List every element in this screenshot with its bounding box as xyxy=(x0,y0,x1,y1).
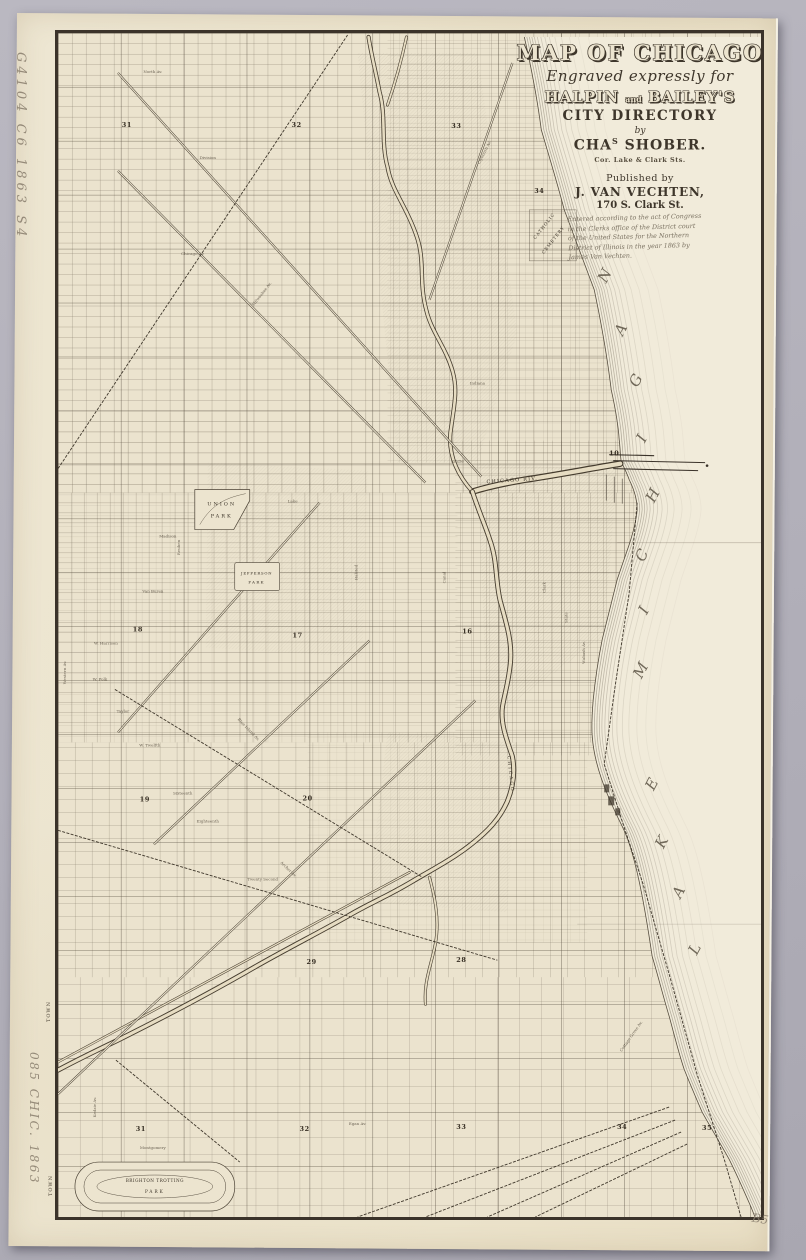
section-number: 32 xyxy=(300,1125,310,1133)
street-label: Sixteenth xyxy=(173,790,193,795)
street-label: State xyxy=(563,612,568,623)
map-subtitle: Engraved expressly for xyxy=(512,67,768,85)
section-number: 31 xyxy=(136,1125,146,1133)
street-label: Kinzie xyxy=(451,459,464,464)
corner-annotation: B5 xyxy=(751,1211,770,1228)
street-label: Eighteenth xyxy=(197,818,220,823)
street-label: Wabash Av. xyxy=(581,641,586,664)
town-boundary-label: TOWN xyxy=(48,1175,54,1196)
street-label: Indiana xyxy=(470,381,486,386)
place-label: UNION xyxy=(207,502,236,508)
street-label: W. Polk xyxy=(93,676,108,681)
section-number: 10 xyxy=(609,450,619,458)
street-label: Twenty Second xyxy=(247,876,278,881)
place-label: PARK xyxy=(211,514,233,520)
section-number: 28 xyxy=(456,956,466,964)
directory-title: CITY DIRECTORY xyxy=(512,108,768,124)
section-number: 31 xyxy=(122,121,132,129)
section-number: 33 xyxy=(451,122,461,130)
engraver-address: Cor. Lake & Clark Sts. xyxy=(512,156,768,164)
halpin-text: HALPIN xyxy=(545,88,619,106)
photo-backdrop: { "page": { "backdrop_color": "#b3b1ba",… xyxy=(0,0,806,1260)
street-label: Taylor xyxy=(117,708,130,713)
place-label: PARK xyxy=(145,1189,165,1194)
call-number-annotation: G4104 C6 1863 S4 xyxy=(13,52,28,240)
engraver-name: CHAS SHOBER. xyxy=(512,136,768,154)
town-boundary-label: TOWN xyxy=(46,1001,52,1022)
baileys-text: BAILEY'S xyxy=(648,88,735,106)
copyright-statement: Entered according to the act of Congress… xyxy=(567,211,743,264)
street-label: W. Twelfth xyxy=(139,742,161,747)
street-label: Canal xyxy=(441,571,446,583)
street-label: Kedzie Av. xyxy=(92,1097,97,1118)
directory-owners: HALPIN and BAILEY'S xyxy=(512,88,768,106)
place-label: JEFFERSON xyxy=(240,571,272,576)
street-label: W. Harrison xyxy=(94,640,118,645)
published-by-text: Published by xyxy=(512,173,768,184)
section-number: 29 xyxy=(307,958,317,966)
section-number: 33 xyxy=(456,1123,466,1131)
section-number: 18 xyxy=(133,625,143,633)
and-text: and xyxy=(625,94,642,104)
section-number: 34 xyxy=(617,1123,627,1131)
accession-annotation: 085 CHIC. 1863 xyxy=(27,1052,41,1185)
section-number: 32 xyxy=(292,121,302,129)
section-number: 20 xyxy=(303,794,313,802)
place-label: PARK xyxy=(248,580,265,585)
section-number: 16 xyxy=(462,627,472,635)
section-number: 17 xyxy=(293,631,303,639)
engraver-post: SHOBER. xyxy=(619,138,706,154)
title-block: MAP OF CHICAGO Engraved expressly for HA… xyxy=(512,40,768,211)
engraver-sup: S xyxy=(612,136,619,146)
engraver-pre: CHA xyxy=(574,138,612,154)
street-label: Madison xyxy=(159,534,177,539)
street-label: Chicago Av. xyxy=(181,251,204,256)
section-number: 35 xyxy=(702,1124,712,1132)
street-label: Montgomery xyxy=(140,1145,167,1150)
by-text: by xyxy=(512,126,768,136)
section-number: 19 xyxy=(140,795,150,803)
map-title: MAP OF CHICAGO xyxy=(512,40,768,65)
place-label: BRIGHTON TROTTING xyxy=(126,1178,184,1183)
street-label: Reuben xyxy=(176,539,181,555)
street-label: Clark xyxy=(541,581,546,593)
street-label: Van Buren xyxy=(141,589,163,594)
street-label: Egan Av. xyxy=(349,1121,366,1126)
street-label: North Av. xyxy=(143,69,162,74)
street-label: Lake xyxy=(288,499,298,504)
street-label: Division xyxy=(200,155,217,160)
publisher-name: J. VAN VECHTEN, xyxy=(512,185,768,199)
publisher-address: 170 S. Clark St. xyxy=(512,200,768,211)
street-label: Halsted xyxy=(354,564,359,580)
street-label: Western Av. xyxy=(62,661,67,685)
